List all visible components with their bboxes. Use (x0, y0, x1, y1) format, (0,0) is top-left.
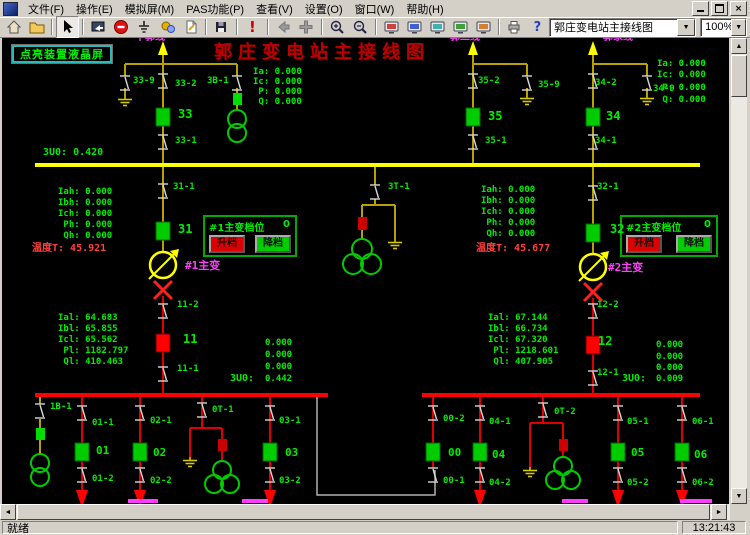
gears-icon[interactable] (156, 16, 179, 38)
diagram-label: Ibl: 65.855 (58, 325, 118, 334)
diagram-label: 33 (178, 108, 192, 120)
zoom-out-icon[interactable] (349, 16, 372, 38)
diagram-label: Ial: 64.683 (58, 314, 118, 323)
earth-icon (183, 457, 197, 467)
toolbar-separator (51, 19, 53, 35)
ds-33-9[interactable] (120, 76, 130, 90)
diagram-label: 02 (153, 447, 166, 458)
ds-34-9[interactable] (642, 76, 652, 90)
breaker-03[interactable] (263, 443, 277, 461)
diagram-label: 3U0: (622, 374, 646, 384)
diagram-label: Ia: 0.000 (657, 60, 706, 69)
diagram-label: Ic: 0.000 (657, 71, 706, 80)
question-icon: ? (534, 20, 542, 35)
fuses (36, 93, 568, 451)
tap-panel-1-title: #1主变档位 (209, 219, 264, 234)
close-button[interactable]: × (730, 1, 747, 16)
edit-page-icon[interactable] (179, 16, 202, 38)
window-controls: × (692, 1, 750, 16)
tap-panel-1: #1主变档位 0 升档 降档 (203, 215, 297, 257)
close-icon: × (735, 4, 743, 14)
menu-view[interactable]: 查看(V) (250, 0, 299, 18)
printer-icon[interactable] (503, 16, 526, 38)
bus-tie-link (317, 397, 435, 495)
ds-1B-1[interactable] (35, 404, 45, 418)
diagram-label: 00-2 (443, 415, 465, 424)
scada-window: 文件(F) 操作(E) 模拟屏(M) PAS功能(P) 查看(V) 设置(O) … (0, 0, 750, 535)
diagram-label: Ic: 0.000 (253, 78, 302, 87)
tap-lower-button-2[interactable]: 降档 (676, 235, 712, 253)
diagram-label: 01-2 (92, 475, 114, 484)
scroll-down-icon[interactable]: ▼ (731, 488, 747, 504)
tap-lower-button-1[interactable]: 降档 (255, 235, 291, 253)
diagram-label: P: 0.000 (253, 88, 302, 97)
vertical-scrollbar[interactable]: ▲ ▼ (731, 38, 747, 504)
breaker-04[interactable] (473, 443, 487, 461)
minimize-button[interactable] (692, 1, 709, 16)
breaker-33[interactable] (156, 108, 170, 126)
diagram-label: 03-2 (279, 477, 301, 486)
zoom-selector-value: 100% (701, 21, 731, 33)
clipped-feeder-label (128, 499, 158, 503)
toolbar-separator (375, 19, 377, 35)
feeder-name-1: 干郭线 (135, 38, 165, 43)
diagram-label: #1主变 (185, 260, 220, 271)
diagram-label: 0.442 (265, 375, 292, 384)
toolbar-separator (498, 19, 500, 35)
line-arrow-up (158, 41, 168, 55)
diagram-label: 31 (178, 223, 192, 235)
breaker-31[interactable] (156, 222, 170, 240)
toolbar-separator (236, 19, 238, 35)
diagram-label: 温度T: 45.677 (476, 244, 550, 254)
diagram-label: Ql: 410.463 (58, 358, 123, 367)
crt-icon-1[interactable] (380, 16, 403, 38)
diagram-label: Qh: 0.000 (481, 230, 535, 239)
breaker-11[interactable] (156, 334, 170, 352)
diagram-label: 06-1 (692, 418, 714, 427)
diagram-label: Ich: 0.000 (481, 208, 535, 217)
zoom-selector[interactable]: 100% ▼ (700, 18, 747, 37)
diagram-label: 0.000 (265, 339, 292, 348)
diagram-label: 31-1 (173, 183, 195, 192)
diagram-label: 04 (492, 449, 505, 460)
diagram-label: 12 (598, 335, 612, 347)
diagram-label: 11 (183, 333, 197, 345)
diagram-label: 00 (448, 447, 461, 458)
tap-panel-2-value: 0 (704, 219, 711, 234)
menu-file[interactable]: 文件(F) (22, 0, 70, 18)
diagram-label: Ia: 0.000 (253, 68, 302, 77)
diagram-label: Ibh: 0.000 (481, 197, 535, 206)
alarm-icon[interactable]: ! (241, 16, 264, 38)
diagram-label: Pl: 1218.601 (488, 347, 558, 356)
diagram-label: 00-1 (443, 477, 465, 486)
earth-symbols (118, 95, 654, 477)
tap-panel-1-value: 0 (283, 219, 290, 234)
feeder-arrow-down (612, 490, 624, 504)
clipped-feeder-label (680, 499, 712, 503)
feeder-arrows (76, 490, 688, 504)
diagram-label: 34 (606, 110, 620, 122)
horizontal-scrollbar[interactable]: ◄ ► (0, 504, 730, 520)
status-ready: 就绪 (7, 520, 29, 535)
ds-3T-1[interactable] (370, 185, 380, 199)
transformer-1[interactable] (149, 249, 179, 299)
diagram-label: Ph: 0.000 (481, 219, 535, 228)
diagram-label: 12-1 (597, 369, 619, 378)
earth-icon (640, 95, 654, 105)
diagram-label: Ph: 0.000 (58, 221, 112, 230)
line-arrow-up (588, 41, 598, 55)
feeder-arrow-down (474, 490, 486, 504)
earth-icon (388, 239, 402, 249)
diagram-label: 02-2 (150, 477, 172, 486)
diagram-label: 01-1 (92, 419, 114, 428)
diagram-label: 3U0: (230, 374, 254, 384)
diagram-label: 0.000 (656, 341, 683, 350)
diagram-label: 35-1 (485, 137, 507, 146)
breaker-35[interactable] (466, 108, 480, 126)
diagram-label: 0T-2 (554, 408, 576, 417)
diagram-label: 05-1 (627, 418, 649, 427)
diagram-label: Icl: 65.562 (58, 336, 118, 345)
diagram-label: 11-1 (177, 365, 199, 374)
feeder-name-2: 郭二线 (450, 38, 480, 43)
diagram-label: 0T-1 (212, 406, 234, 415)
menu-window[interactable]: 窗口(W) (349, 0, 401, 18)
view-selector-value: 郭庄变电站主接线图 (550, 19, 657, 35)
diagram-label: 34-2 (595, 79, 617, 88)
diagram-label: 06 (694, 449, 707, 460)
diagram-label: 01 (96, 445, 109, 456)
tap-raise-button-2[interactable]: 升档 (626, 235, 662, 253)
diagram-label: 3T-1 (388, 183, 410, 192)
exclamation-icon: ! (249, 18, 256, 36)
status-clock: 13:21:43 (693, 522, 736, 534)
scroll-up-icon[interactable]: ▲ (731, 38, 747, 54)
diagram-label: Q: 0.000 (253, 98, 302, 107)
home-icon[interactable] (2, 16, 25, 38)
ground-icon[interactable] (133, 16, 156, 38)
menu-pas[interactable]: PAS功能(P) (180, 0, 250, 18)
breaker-34[interactable] (586, 108, 600, 126)
diagram-label: Ial: 67.144 (488, 314, 548, 323)
toolbar: ! ? 郭庄变电站主接线图 ▼ 100% (0, 17, 750, 38)
menu-settings[interactable]: 设置(O) (299, 0, 349, 18)
diagram-label: Ich: 0.000 (58, 210, 112, 219)
tap-panel-2: #2主变档位 0 升档 降档 (620, 215, 718, 257)
diagram-label: 35-9 (538, 81, 560, 90)
crt-icon-5[interactable] (472, 16, 495, 38)
help-icon[interactable]: ? (526, 16, 549, 38)
diagram-label: 32-1 (597, 183, 619, 192)
breaker-01[interactable] (75, 443, 89, 461)
diagram-label: 04-1 (489, 418, 511, 427)
ds-00-1[interactable] (428, 468, 438, 482)
diagram-label: 34-1 (595, 137, 617, 146)
feeder-arrow-down (76, 490, 88, 504)
diagram-label: 0.000 (265, 363, 292, 372)
chevron-down-icon[interactable]: ▼ (731, 19, 746, 36)
diagram-label: 1B-1 (50, 403, 72, 412)
diagram-label: 33-1 (175, 137, 197, 146)
scroll-right-icon[interactable]: ► (711, 504, 727, 520)
diagram-label: 02-1 (150, 417, 172, 426)
lcd-button[interactable]: 点亮装置液晶屏 (12, 45, 112, 63)
view-selector[interactable]: 郭庄变电站主接线图 ▼ (549, 18, 696, 37)
cursor-tool-icon[interactable] (56, 16, 79, 38)
diagram-label: 3B-1 (207, 77, 229, 86)
diagram-label: Iah: 0.000 (481, 186, 535, 195)
earth-icon (118, 96, 132, 106)
save-icon[interactable] (210, 16, 233, 38)
diagram-label: 33-2 (175, 80, 197, 89)
diagram-label: 03-1 (279, 417, 301, 426)
menu-mimic[interactable]: 模拟屏(M) (119, 0, 181, 18)
diagram-label: Ql: 407.905 (488, 358, 553, 367)
zoom-in-icon[interactable] (326, 16, 349, 38)
diagram-label: 05-2 (627, 479, 649, 488)
bus-10kv (35, 393, 700, 397)
diagram-label: 04-2 (489, 479, 511, 488)
diagram-label: 0.000 (265, 351, 292, 360)
app-icon (3, 2, 18, 16)
breaker-05[interactable] (611, 443, 625, 461)
diagram-label: 35-2 (478, 77, 500, 86)
diagram-label: 温度T: 45.921 (32, 244, 106, 254)
clipped-feeder-label (562, 499, 588, 503)
toolbar-separator (267, 19, 269, 35)
breaker-00[interactable] (426, 443, 440, 461)
diagram-canvas: 郭庄变电站主接线图 点亮装置液晶屏 #1主变档位 0 升档 降档 #2主变档位 … (2, 38, 729, 504)
screen-arrow-icon[interactable] (87, 16, 110, 38)
move-icon[interactable] (295, 16, 318, 38)
crt-icon-3[interactable] (426, 16, 449, 38)
breaker-32[interactable] (586, 224, 600, 242)
diagram-label: Ibl: 66.734 (488, 325, 548, 334)
back-arrow-icon[interactable] (272, 16, 295, 38)
diagram-label: #2主变 (608, 262, 643, 273)
scrollbar-corner (730, 504, 750, 520)
tap-panel-2-title: #2主变档位 (626, 219, 681, 234)
chevron-down-icon[interactable]: ▼ (677, 19, 695, 36)
diagram-label: 0.000 (656, 364, 683, 373)
horizontal-scroll-thumb[interactable] (17, 504, 710, 520)
restore-button[interactable] (711, 1, 728, 16)
diagram-label: 05 (631, 447, 644, 458)
diagram-label: Pl: 1182.797 (58, 347, 128, 356)
breaker-02[interactable] (133, 443, 147, 461)
clipped-feeder-label (242, 499, 268, 503)
diagram-label: Ibh: 0.000 (58, 199, 112, 208)
minimize-icon (697, 3, 704, 12)
diagram-label: 03 (285, 447, 298, 458)
stop-icon[interactable] (110, 16, 133, 38)
diagram-title: 郭庄变电站主接线图 (214, 38, 430, 64)
diagram-label: 3U0: 0.420 (43, 148, 103, 158)
crt-icon-2[interactable] (403, 16, 426, 38)
open-folder-icon[interactable] (25, 16, 48, 38)
menu-operate[interactable]: 操作(E) (70, 0, 119, 18)
diagram-label: 0.000 (656, 353, 683, 362)
diagram-label: 32 (610, 223, 624, 235)
earth-icon (523, 467, 537, 477)
status-bar: 就绪 13:21:43 (0, 520, 750, 535)
diagram-label: 06-2 (692, 479, 714, 488)
diagram-label: 35 (488, 110, 502, 122)
diagram-label: Iah: 0.000 (58, 188, 112, 197)
line-arrow-up (468, 41, 478, 55)
diagram-label: Q: 0.000 (657, 96, 706, 105)
disconnectors (35, 74, 687, 482)
toolbar-separator (82, 19, 84, 35)
diagram-label: 34-9 (653, 85, 675, 94)
vertical-scroll-thumb[interactable] (731, 55, 747, 97)
ds-3B-1[interactable] (232, 76, 242, 90)
tap-raise-button-1[interactable]: 升档 (209, 235, 245, 253)
diagram-label: 12-2 (597, 301, 619, 310)
breaker-06[interactable] (675, 443, 689, 461)
restore-icon (715, 4, 724, 13)
scroll-left-icon[interactable]: ◄ (0, 504, 16, 520)
diagram-label: 0.009 (656, 375, 683, 384)
toolbar-separator (321, 19, 323, 35)
diagram-label: 11-2 (177, 301, 199, 310)
diagram-label: Icl: 67.320 (488, 336, 548, 345)
crt-icon-4[interactable] (449, 16, 472, 38)
voltage-transformers (31, 110, 580, 493)
transformer-2[interactable] (579, 251, 609, 301)
toolbar-separator (205, 19, 207, 35)
feeder-name-3: 郭家线 (603, 38, 633, 43)
diagram-label: Qh: 0.000 (58, 232, 112, 241)
ds-35-9[interactable] (522, 76, 532, 90)
diagram-label: 33-9 (133, 77, 155, 86)
earth-icon (520, 95, 534, 105)
menu-help[interactable]: 帮助(H) (400, 0, 449, 18)
